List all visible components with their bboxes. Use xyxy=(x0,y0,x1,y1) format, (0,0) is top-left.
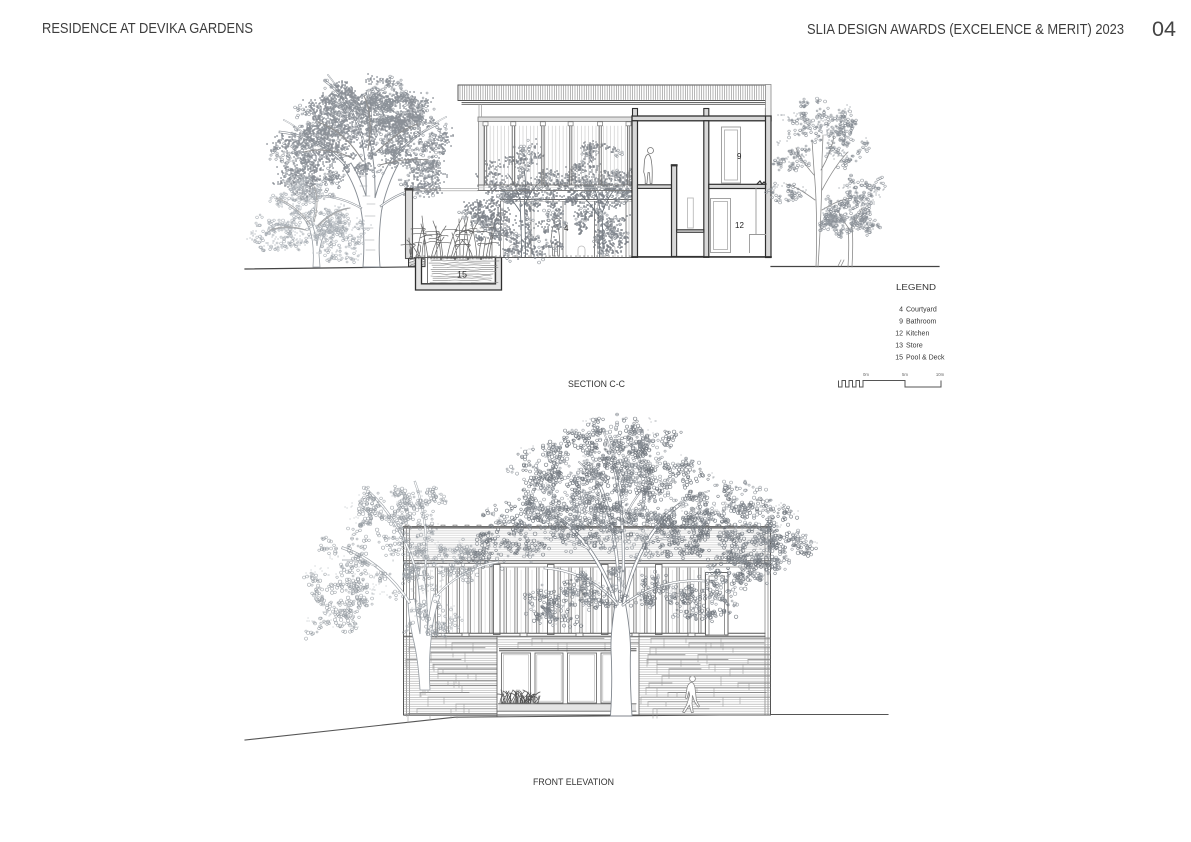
svg-text:Kitchen: Kitchen xyxy=(906,331,929,338)
svg-text:15: 15 xyxy=(457,270,467,280)
svg-text:Store: Store xyxy=(906,343,923,350)
svg-text:SECTION C-C: SECTION C-C xyxy=(568,379,625,390)
svg-text:FRONT ELEVATION: FRONT ELEVATION xyxy=(533,777,614,788)
svg-text:15: 15 xyxy=(895,355,903,362)
svg-text:5m: 5m xyxy=(902,372,908,377)
svg-text:LEGEND: LEGEND xyxy=(896,282,936,292)
svg-text:0m: 0m xyxy=(863,372,869,377)
svg-text:9: 9 xyxy=(899,319,903,326)
svg-text:12: 12 xyxy=(735,221,744,230)
svg-text:12: 12 xyxy=(895,331,903,338)
svg-text:SLIA DESIGN AWARDS (EXCELENCE: SLIA DESIGN AWARDS (EXCELENCE & MERIT) 2… xyxy=(807,22,1124,38)
svg-text:9: 9 xyxy=(737,152,742,161)
svg-text:13: 13 xyxy=(895,343,903,350)
svg-text:Bathroom: Bathroom xyxy=(906,319,937,326)
svg-text:4: 4 xyxy=(899,307,903,314)
svg-text:10m: 10m xyxy=(936,372,945,377)
svg-text:Courtyard: Courtyard xyxy=(906,307,937,314)
svg-text:RESIDENCE AT DEVIKA GARDENS: RESIDENCE AT DEVIKA GARDENS xyxy=(42,21,253,37)
svg-text:04: 04 xyxy=(1152,18,1176,41)
svg-text:Pool & Deck: Pool & Deck xyxy=(906,355,945,362)
